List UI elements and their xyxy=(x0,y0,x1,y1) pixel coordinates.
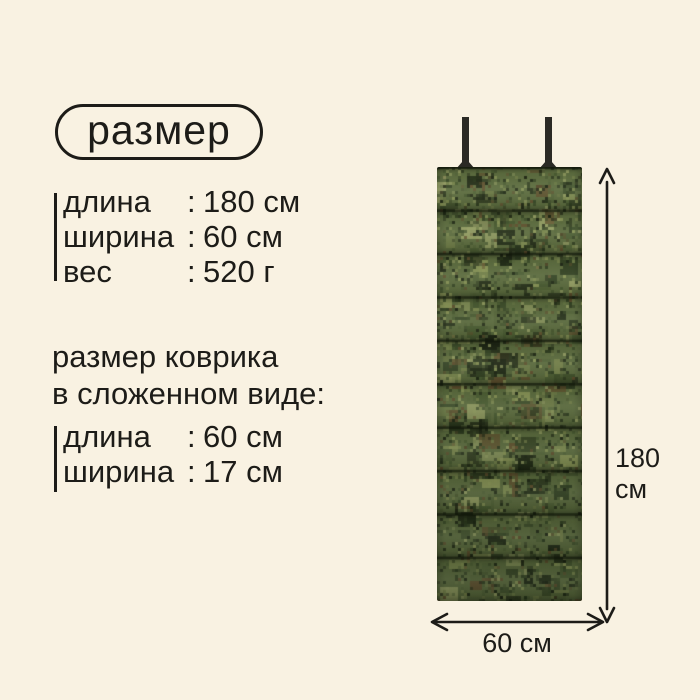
spec-row-folded-length: длина : 60 см xyxy=(63,419,283,454)
size-badge: размер xyxy=(55,104,263,160)
mat-strap-right xyxy=(545,117,552,169)
spec-row-weight: вес : 520 г xyxy=(63,254,300,289)
camo-mat-photo xyxy=(437,167,582,601)
main-specs-block: длина : 180 см ширина : 60 см вес : 520 … xyxy=(54,184,300,289)
specs-divider-bar xyxy=(54,193,57,281)
spec-row-width: ширина : 60 см xyxy=(63,219,300,254)
folded-title-line1: размер коврика xyxy=(52,338,325,375)
spec-value: 17 см xyxy=(203,454,283,490)
spec-row-folded-width: ширина : 17 см xyxy=(63,454,283,489)
spec-label: длина xyxy=(63,184,187,220)
spec-value: 520 г xyxy=(203,254,275,290)
mat-strap-left xyxy=(462,117,469,169)
specs-divider-bar xyxy=(54,426,57,492)
spec-label: длина xyxy=(63,419,187,455)
spec-colon: : xyxy=(187,219,203,255)
width-dimension-label: 60 см xyxy=(452,628,582,659)
height-dimension-label: 180 см xyxy=(615,443,660,505)
height-value: 180 xyxy=(615,443,660,474)
spec-value: 60 см xyxy=(203,219,283,255)
spec-colon: : xyxy=(187,419,203,455)
product-infographic: размер длина : 180 см ширина : 60 см вес… xyxy=(0,0,700,700)
height-arrow-icon xyxy=(600,169,614,622)
folded-specs-block: длина : 60 см ширина : 17 см xyxy=(54,419,283,489)
spec-value: 180 см xyxy=(203,184,300,220)
spec-colon: : xyxy=(187,254,203,290)
spec-colon: : xyxy=(187,184,203,220)
spec-colon: : xyxy=(187,454,203,490)
spec-label: ширина xyxy=(63,454,187,490)
folded-size-title: размер коврика в сложенном виде: xyxy=(52,338,325,412)
main-specs-rows: длина : 180 см ширина : 60 см вес : 520 … xyxy=(63,184,300,289)
folded-title-line2: в сложенном виде: xyxy=(52,375,325,412)
spec-label: вес xyxy=(63,254,187,290)
spec-row-length: длина : 180 см xyxy=(63,184,300,219)
spec-label: ширина xyxy=(63,219,187,255)
size-badge-label: размер xyxy=(87,107,231,154)
spec-value: 60 см xyxy=(203,419,283,455)
folded-specs-rows: длина : 60 см ширина : 17 см xyxy=(63,419,283,489)
height-unit: см xyxy=(615,474,660,505)
